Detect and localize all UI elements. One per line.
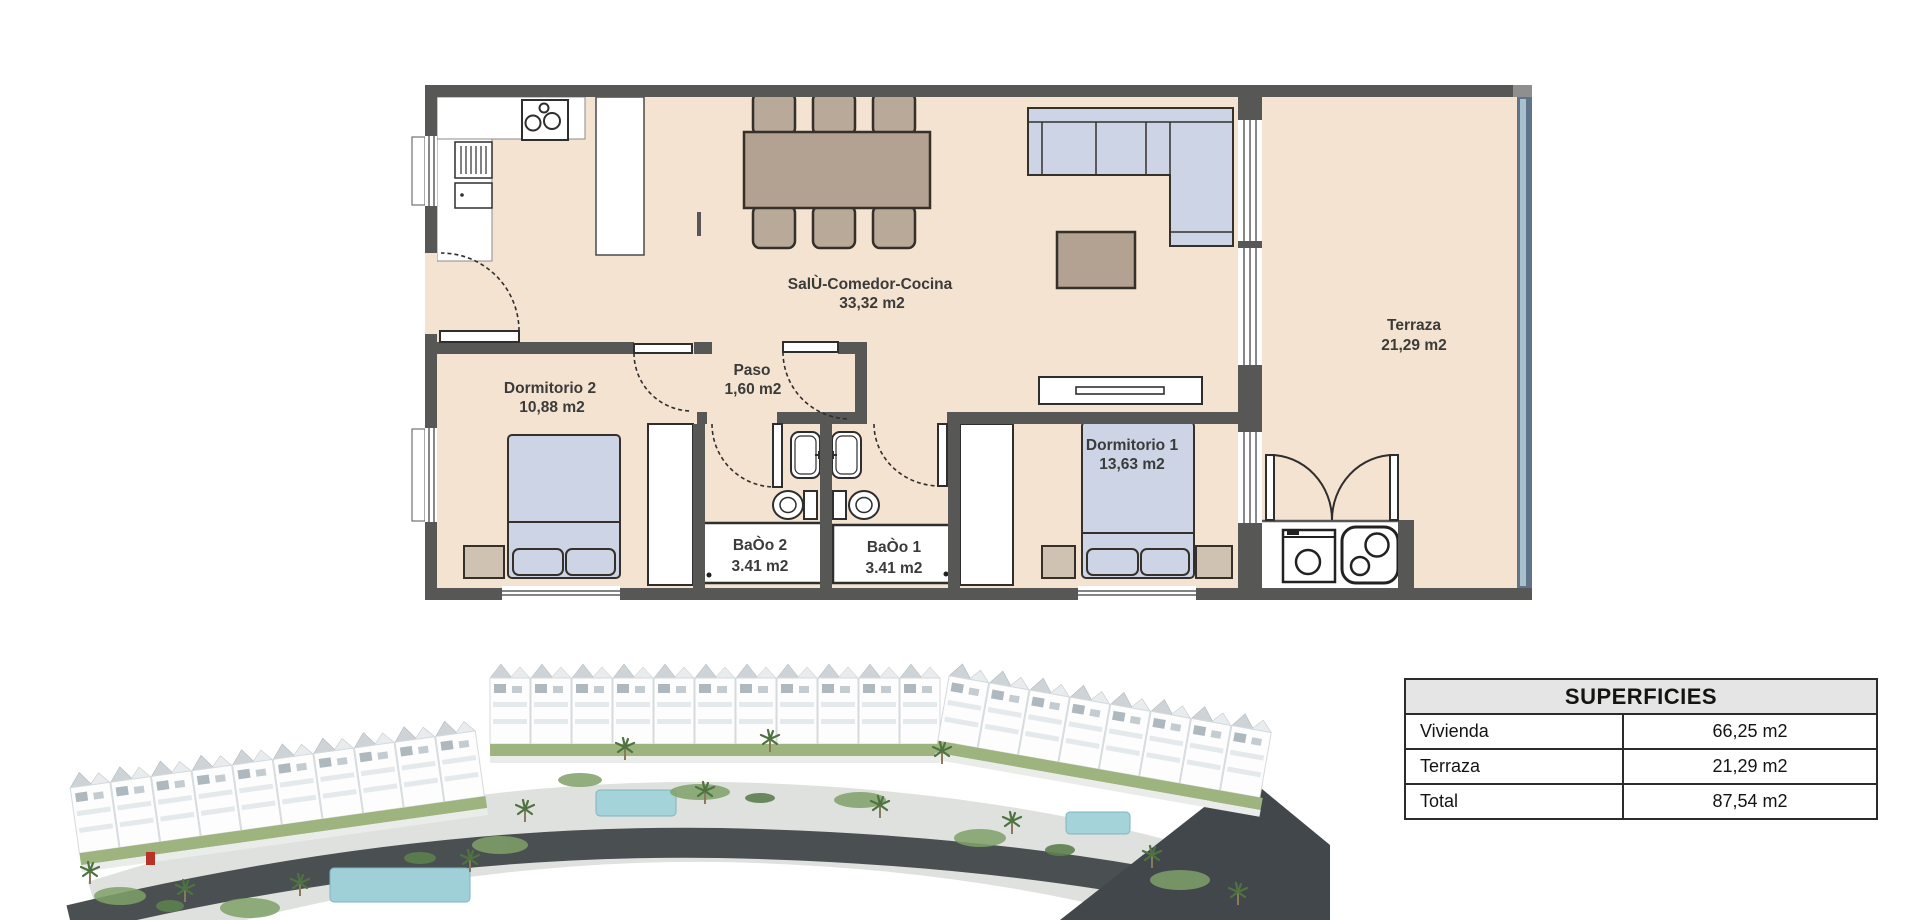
toilet-icon-bano-2 — [773, 491, 803, 519]
room-label-bano2: BaÒo 2 — [733, 536, 787, 554]
bano1-door-leaf — [938, 424, 947, 486]
hob-burner-icon — [526, 116, 541, 131]
pillow-icon — [513, 549, 563, 575]
room-label-paso: Paso — [733, 362, 770, 379]
pool — [596, 790, 676, 816]
table-row: Terraza 21,29 m2 — [1406, 750, 1876, 785]
room-area-terraza: 21,29 m2 — [1381, 337, 1447, 354]
dot-icon — [944, 572, 949, 577]
wall-terraza-sep — [1238, 523, 1262, 588]
wardrobe-dormitorio-1 — [960, 424, 1013, 585]
toilet-tank-icon — [804, 491, 817, 519]
pillow-icon — [566, 549, 615, 575]
bano2-door-leaf — [773, 424, 782, 487]
chair-icon — [873, 93, 915, 135]
window-frame — [412, 137, 425, 205]
window-left-upper — [425, 136, 437, 206]
wall-dorm1-top — [947, 412, 1238, 424]
window-frame — [412, 429, 425, 521]
terraza-closet — [1262, 520, 1414, 588]
closet-wall — [1398, 520, 1414, 588]
wall-terraza-sep — [1238, 97, 1262, 122]
red-flag-icon — [146, 852, 155, 865]
pool — [1066, 812, 1130, 834]
room-label-terraza: Terraza — [1387, 317, 1441, 334]
superficies-table: SUPERFICIES Vivienda 66,25 m2 Terraza 21… — [1404, 678, 1878, 820]
room-label-dorm1: Dormitorio 1 — [1086, 437, 1179, 454]
chair-icon — [753, 93, 795, 135]
kitchen-island — [596, 97, 644, 255]
row-label-terraza: Terraza — [1406, 750, 1624, 783]
row-label-vivienda: Vivienda — [1406, 715, 1624, 748]
table-row: Total 87,54 m2 — [1406, 785, 1876, 818]
toilet-icon-bano-1 — [849, 491, 879, 519]
glass-wall-inner — [1520, 99, 1526, 586]
pool — [330, 868, 470, 902]
coffee-table — [1057, 232, 1135, 288]
wall-vert — [693, 424, 705, 588]
chair-icon — [813, 93, 855, 135]
entrance-door-leaf — [440, 331, 519, 342]
room-area-dorm1: 13,63 m2 — [1099, 456, 1165, 473]
wall-stub — [694, 342, 712, 354]
room-label-bano1: BaÒo 1 — [867, 538, 922, 556]
wall-bano-divider — [820, 424, 832, 588]
oven-knob-icon — [460, 193, 464, 197]
base — [490, 756, 940, 763]
wall-dorm2-top — [437, 342, 634, 354]
nightstand — [1042, 546, 1075, 578]
hedge — [490, 744, 940, 756]
entrance-opening — [425, 253, 437, 334]
tv-icon — [1076, 387, 1164, 394]
pillow-icon — [1141, 549, 1189, 575]
wall-jog — [855, 342, 867, 424]
pillow-icon — [1087, 549, 1138, 575]
paso-door-leaf — [783, 342, 838, 352]
wall-bano2-top — [697, 412, 707, 424]
chair-icon — [813, 206, 855, 248]
window-left-lower — [425, 428, 437, 522]
room-area-paso: 1,60 m2 — [725, 381, 782, 398]
closet-door-leaf — [1266, 455, 1274, 520]
chair-icon — [873, 206, 915, 248]
row-value-total: 87,54 m2 — [1624, 785, 1876, 818]
wall-vert — [948, 424, 960, 588]
dot-icon — [707, 573, 712, 578]
table-row: Vivienda 66,25 m2 — [1406, 715, 1876, 750]
hob-burner-icon — [544, 113, 560, 129]
wall-notch — [1513, 85, 1532, 97]
chair-icon — [753, 206, 795, 248]
nightstand — [1196, 546, 1232, 578]
floor-plan: SalÙ-Comedor-Cocina 33,32 m2 Terraza 21,… — [412, 85, 1532, 601]
wardrobe-dormitorio-2 — [648, 424, 693, 585]
row-value-terraza: 21,29 m2 — [1624, 750, 1876, 783]
mullion — [1238, 241, 1262, 248]
wall-terraza-sep — [1238, 365, 1262, 432]
row-label-total: Total — [1406, 785, 1624, 818]
row-value-vivienda: 66,25 m2 — [1624, 715, 1876, 748]
window-bottom-dorm2 — [502, 586, 620, 601]
building-block-right — [934, 662, 1276, 817]
superficies-title: SUPERFICIES — [1406, 680, 1876, 715]
nightstand — [464, 546, 504, 578]
room-area-salon: 33,32 m2 — [839, 295, 905, 312]
washer-detail — [1287, 531, 1299, 535]
room-area-dorm2: 10,88 m2 — [519, 399, 585, 416]
room-label-dorm2: Dormitorio 2 — [504, 380, 596, 397]
window-bottom-dorm1 — [1078, 586, 1196, 601]
washer-drum-icon — [1296, 550, 1320, 574]
building-render — [68, 662, 1330, 920]
dorm2-door-leaf — [634, 344, 692, 353]
dining-table — [744, 132, 930, 208]
hob-burner-icon — [540, 104, 549, 113]
toilet-tank-icon — [833, 491, 846, 519]
closet-door-leaf — [1390, 455, 1398, 520]
dining-set — [744, 93, 930, 248]
room-area-bano1: 3.41 m2 — [866, 560, 923, 577]
wall-top — [425, 85, 1517, 97]
room-area-bano2: 3.41 m2 — [732, 558, 789, 575]
laundry-basin — [1366, 534, 1389, 557]
room-label-salon: SalÙ-Comedor-Cocina — [788, 275, 953, 293]
page: SalÙ-Comedor-Cocina 33,32 m2 Terraza 21,… — [0, 0, 1920, 920]
laundry-basin — [1351, 557, 1369, 575]
building-block-middle — [490, 664, 940, 763]
wall-stub — [697, 212, 701, 236]
